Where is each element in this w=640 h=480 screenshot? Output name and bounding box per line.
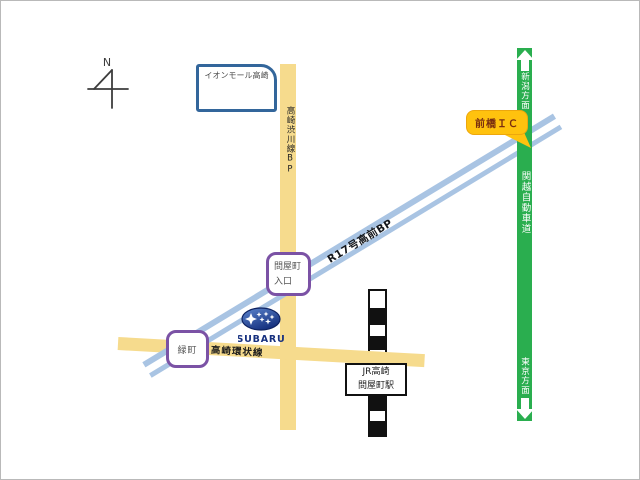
railway-segment	[370, 421, 385, 435]
station-name-line2: 問屋町駅	[358, 380, 394, 393]
r17-bp-label: R17号高前BP	[324, 215, 395, 266]
south-direction-arrow-icon	[513, 397, 537, 419]
north-label: N	[103, 56, 111, 69]
map-canvas: R17号高前BP 新潟方面 関越自動車道 東京方面 高崎渋川線BP 高崎環状線 …	[0, 0, 640, 480]
station-sign: JR高崎 問屋町駅	[345, 363, 407, 396]
north-arrow-icon	[88, 70, 128, 108]
kanetsu-expressway-label: 関越自動車道	[518, 171, 532, 234]
railway-segment	[370, 395, 385, 411]
tonyamachi-entrance-line2: 入口	[274, 275, 308, 290]
maebashi-ic-label: 前橋ＩＣ	[475, 115, 519, 130]
station-name-line1: JR高崎	[363, 366, 390, 379]
subaru-dealer-logo: SUBARU	[238, 306, 284, 346]
midoricho-label: 緑町	[177, 343, 197, 356]
tokyo-direction-label: 東京方面	[519, 357, 531, 395]
railway-segment	[370, 336, 385, 350]
tonyamachi-entrance-line1: 問屋町	[274, 260, 308, 275]
tonyamachi-entrance-sign: 問屋町 入口	[266, 252, 311, 296]
midoricho-sign: 緑町	[166, 330, 209, 368]
niigata-direction-label: 新潟方面	[519, 72, 531, 110]
subaru-wordmark: SUBARU	[238, 334, 284, 345]
aeon-mall-label: イオンモール高崎	[199, 67, 274, 81]
shibukawa-bp-label: 高崎渋川線BP	[281, 106, 296, 176]
north-direction-arrow-icon	[513, 50, 537, 72]
road-kanetsu-expressway: 新潟方面 関越自動車道 東京方面	[517, 48, 532, 421]
maebashi-ic-callout: 前橋ＩＣ	[466, 110, 528, 135]
north-compass: N	[80, 45, 140, 115]
landmark-aeon-mall: イオンモール高崎	[196, 64, 277, 112]
railway-segment	[370, 308, 385, 325]
